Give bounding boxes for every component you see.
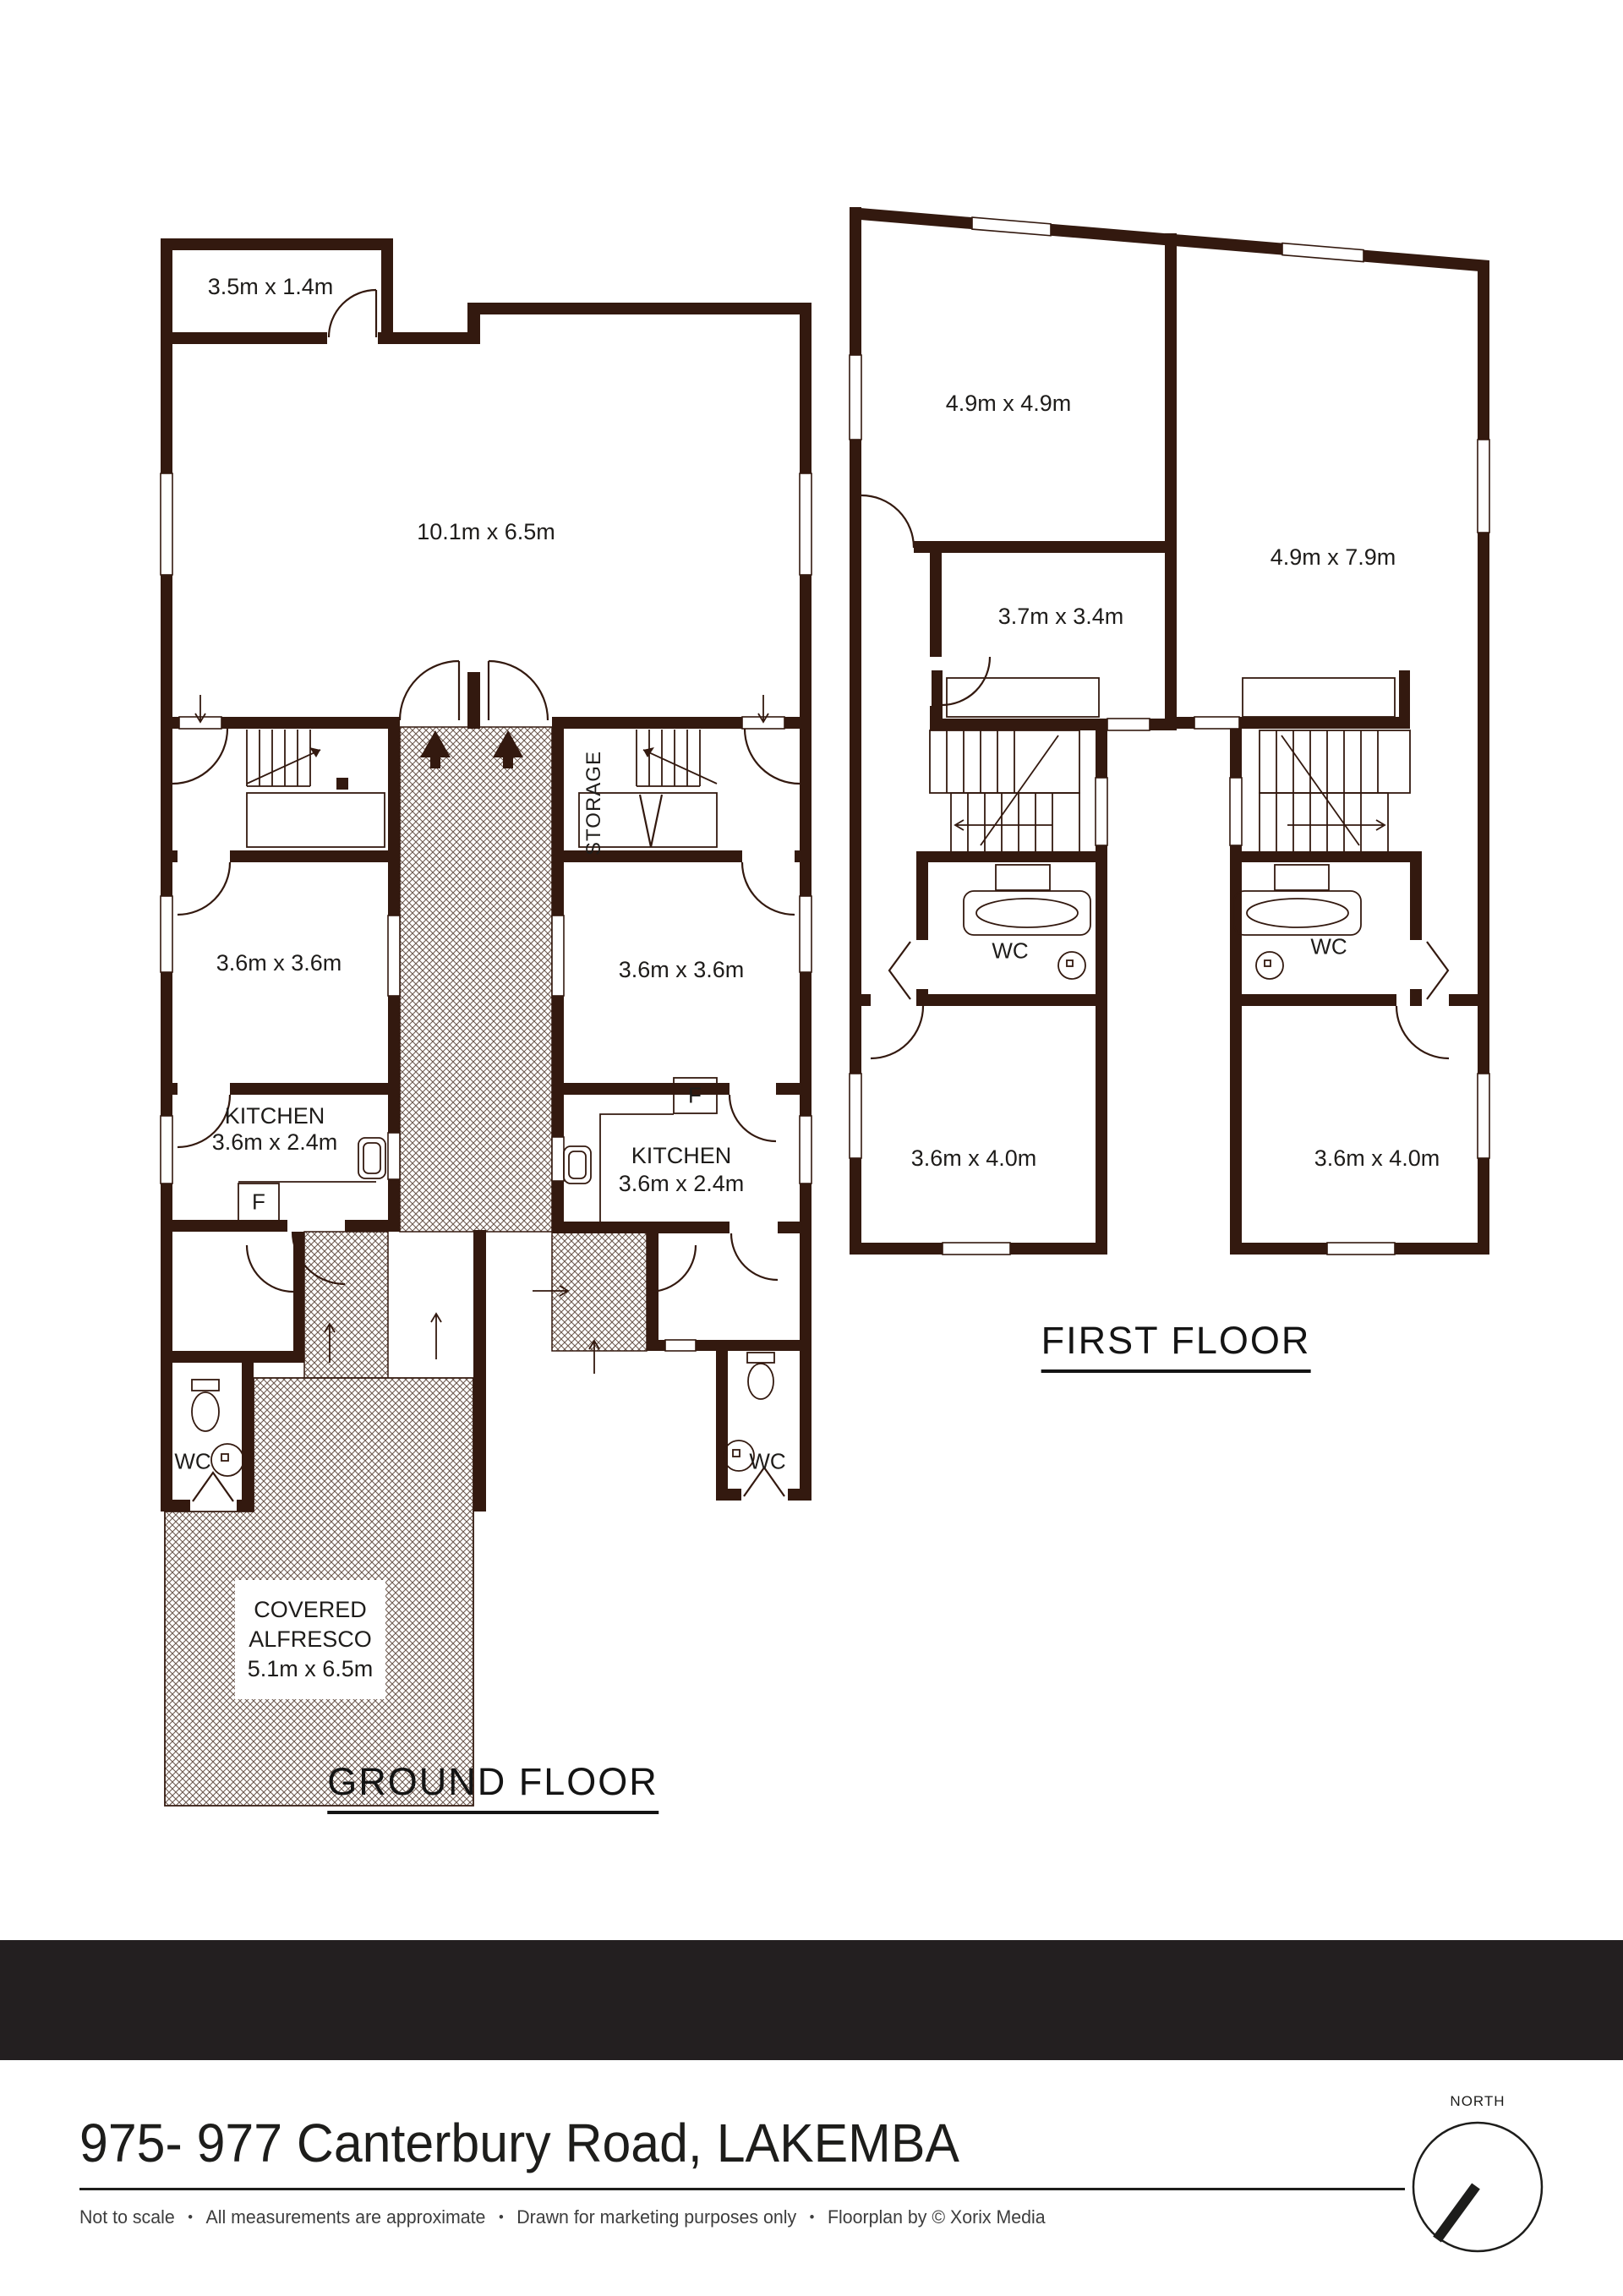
footer-black-bar bbox=[0, 1940, 1623, 2060]
wc-label-left-ground: WC bbox=[174, 1450, 210, 1474]
room-label-bedroom-bottom-right-first: 3.6m x 4.0m bbox=[1314, 1146, 1440, 1172]
room-label-living-ground: 10.1m x 6.5m bbox=[417, 520, 555, 545]
first-floor-title: FIRST FLOOR bbox=[1041, 1319, 1311, 1373]
room-label-kitchen-left-name: KITCHEN bbox=[225, 1104, 325, 1129]
north-compass-icon bbox=[1413, 2123, 1542, 2251]
room-label-living-first: 4.9m x 7.9m bbox=[1271, 545, 1396, 571]
property-address: 975- 977 Canterbury Road, LAKEMBA bbox=[79, 2112, 959, 2174]
room-label-kitchen-left-dims: 3.6m x 2.4m bbox=[212, 1130, 338, 1156]
fridge-label-left: F bbox=[252, 1190, 265, 1215]
footer-divider-line bbox=[79, 2188, 1405, 2190]
north-label: NORTH bbox=[1450, 2093, 1505, 2110]
wc-label-left-first: WC bbox=[992, 939, 1028, 964]
wc-label-right-first: WC bbox=[1310, 935, 1347, 959]
room-label-storage: STORAGE bbox=[583, 751, 605, 856]
room-label-bedroom-mid-left-first: 3.7m x 3.4m bbox=[998, 604, 1124, 630]
footer-disclaimer: Not to scale•All measurements are approx… bbox=[79, 2206, 1046, 2228]
room-label-kitchen-right-dims: 3.6m x 2.4m bbox=[619, 1172, 745, 1197]
alfresco-label-dims: 5.1m x 6.5m bbox=[248, 1657, 374, 1682]
room-label-bedroom-right-ground: 3.6m x 3.6m bbox=[619, 958, 745, 983]
alfresco-label-line1: COVERED bbox=[254, 1598, 367, 1623]
wc-label-right-ground: WC bbox=[749, 1450, 785, 1474]
disclaimer-item: Floorplan by © Xorix Media bbox=[828, 2206, 1046, 2228]
bullet-separator: • bbox=[499, 2209, 504, 2226]
floorplan-page: 3.5m x 1.4m 10.1m x 6.5m STORAGE 3.6m x … bbox=[0, 0, 1623, 2296]
disclaimer-item: Drawn for marketing purposes only bbox=[516, 2206, 796, 2228]
room-label-kitchen-right-name: KITCHEN bbox=[631, 1144, 732, 1169]
room-label-bedroom-bottom-left-first: 3.6m x 4.0m bbox=[911, 1146, 1037, 1172]
fridge-label-right: F bbox=[688, 1084, 702, 1108]
wc-fixtures-first bbox=[964, 891, 1361, 979]
room-label-bedroom-top-left-first: 4.9m x 4.9m bbox=[946, 391, 1072, 417]
bullet-separator: • bbox=[810, 2209, 815, 2226]
ground-floor-title: GROUND FLOOR bbox=[327, 1760, 658, 1814]
alfresco-label-line2: ALFRESCO bbox=[249, 1627, 372, 1653]
disclaimer-item: All measurements are approximate bbox=[206, 2206, 486, 2228]
disclaimer-item: Not to scale bbox=[79, 2206, 175, 2228]
hatched-paved-areas bbox=[165, 727, 647, 1806]
room-label-bedroom-left-ground: 3.6m x 3.6m bbox=[216, 951, 342, 976]
bullet-separator: • bbox=[188, 2209, 193, 2226]
room-label-porch: 3.5m x 1.4m bbox=[208, 275, 334, 300]
